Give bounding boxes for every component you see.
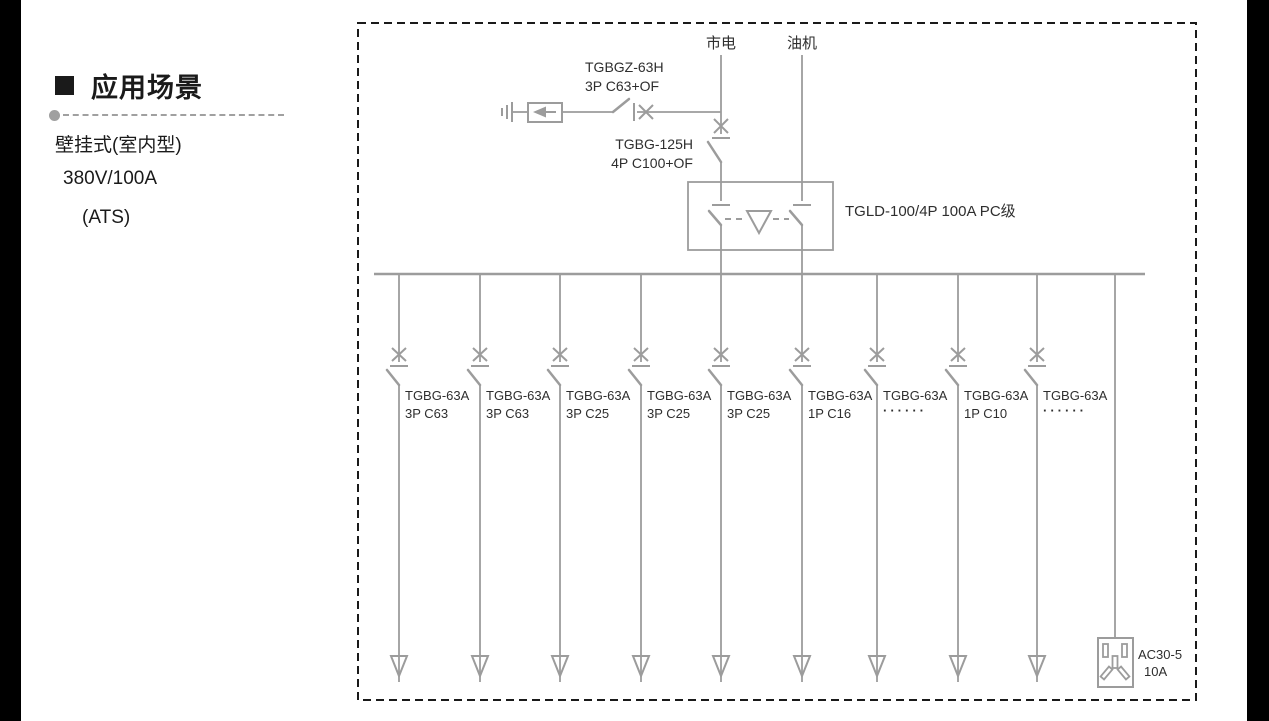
branch-model: TGBG-63A	[808, 388, 873, 403]
spd-breaker-model: TGBGZ-63H	[585, 59, 664, 75]
ground-icon	[502, 102, 528, 122]
branch-spec: 3P C25	[647, 406, 690, 421]
feeder-branch-9: TGBG-63A ······	[1025, 274, 1108, 682]
branch-spec: 3P C63	[405, 406, 448, 421]
feeder-branch-4: TGBG-63A 3P C25	[629, 274, 712, 682]
ats-label: TGLD-100/4P 100A PC级	[845, 203, 1016, 220]
main-breaker-icon	[708, 119, 730, 182]
branch-model: TGBG-63A	[647, 388, 712, 403]
branch-spec: ······	[1043, 403, 1087, 418]
feeder-branch-3: TGBG-63A 3P C25	[548, 274, 631, 682]
socket-branch: AC30-5 10A	[1098, 274, 1182, 687]
branch-model: TGBG-63A	[566, 388, 631, 403]
branch-spec: 3P C25	[566, 406, 609, 421]
feeder-branch-5: TGBG-63A 3P C25	[709, 274, 792, 682]
feeder-branch-6: TGBG-63A 1P C16	[790, 274, 873, 682]
socket-rating: 10A	[1144, 664, 1167, 679]
branch-spec: 1P C10	[964, 406, 1007, 421]
ats-switch-icon	[688, 182, 833, 274]
socket-icon	[1098, 638, 1133, 687]
branch-model: TGBG-63A	[727, 388, 792, 403]
branch-spec: 3P C63	[486, 406, 529, 421]
diagram-dashed-border	[358, 23, 1196, 700]
spd-breaker-icon	[562, 99, 721, 121]
branch-spec: ······	[883, 403, 927, 418]
spd-breaker-spec: 3P C63+OF	[585, 78, 659, 94]
mains-label: 市电	[706, 35, 736, 52]
feeder-branch-7: TGBG-63A ······	[865, 274, 948, 682]
feeder-branch-2: TGBG-63A 3P C63	[468, 274, 551, 682]
surge-arrester-icon	[528, 103, 562, 122]
branch-model: TGBG-63A	[486, 388, 551, 403]
ats-interlock-icon	[747, 211, 771, 233]
main-breaker-spec: 4P C100+OF	[611, 155, 693, 171]
single-line-diagram: 市电 油机 TGBGZ-63H 3P C63+OF	[0, 0, 1269, 721]
branch-model: TGBG-63A	[964, 388, 1029, 403]
socket-model: AC30-5	[1138, 647, 1182, 662]
branch-spec: 1P C16	[808, 406, 851, 421]
feeder-branch-1: TGBG-63A 3P C63	[387, 274, 470, 682]
branch-model: TGBG-63A	[1043, 388, 1108, 403]
feeder-branch-8: TGBG-63A 1P C10	[946, 274, 1029, 682]
main-breaker-model: TGBG-125H	[615, 136, 693, 152]
branch-spec: 3P C25	[727, 406, 770, 421]
branch-model: TGBG-63A	[405, 388, 470, 403]
generator-label: 油机	[787, 35, 817, 52]
branch-model: TGBG-63A	[883, 388, 948, 403]
catalog-page: 应用场景 壁挂式(室内型) 380V/100A (ATS) 市电 油机	[0, 0, 1269, 721]
